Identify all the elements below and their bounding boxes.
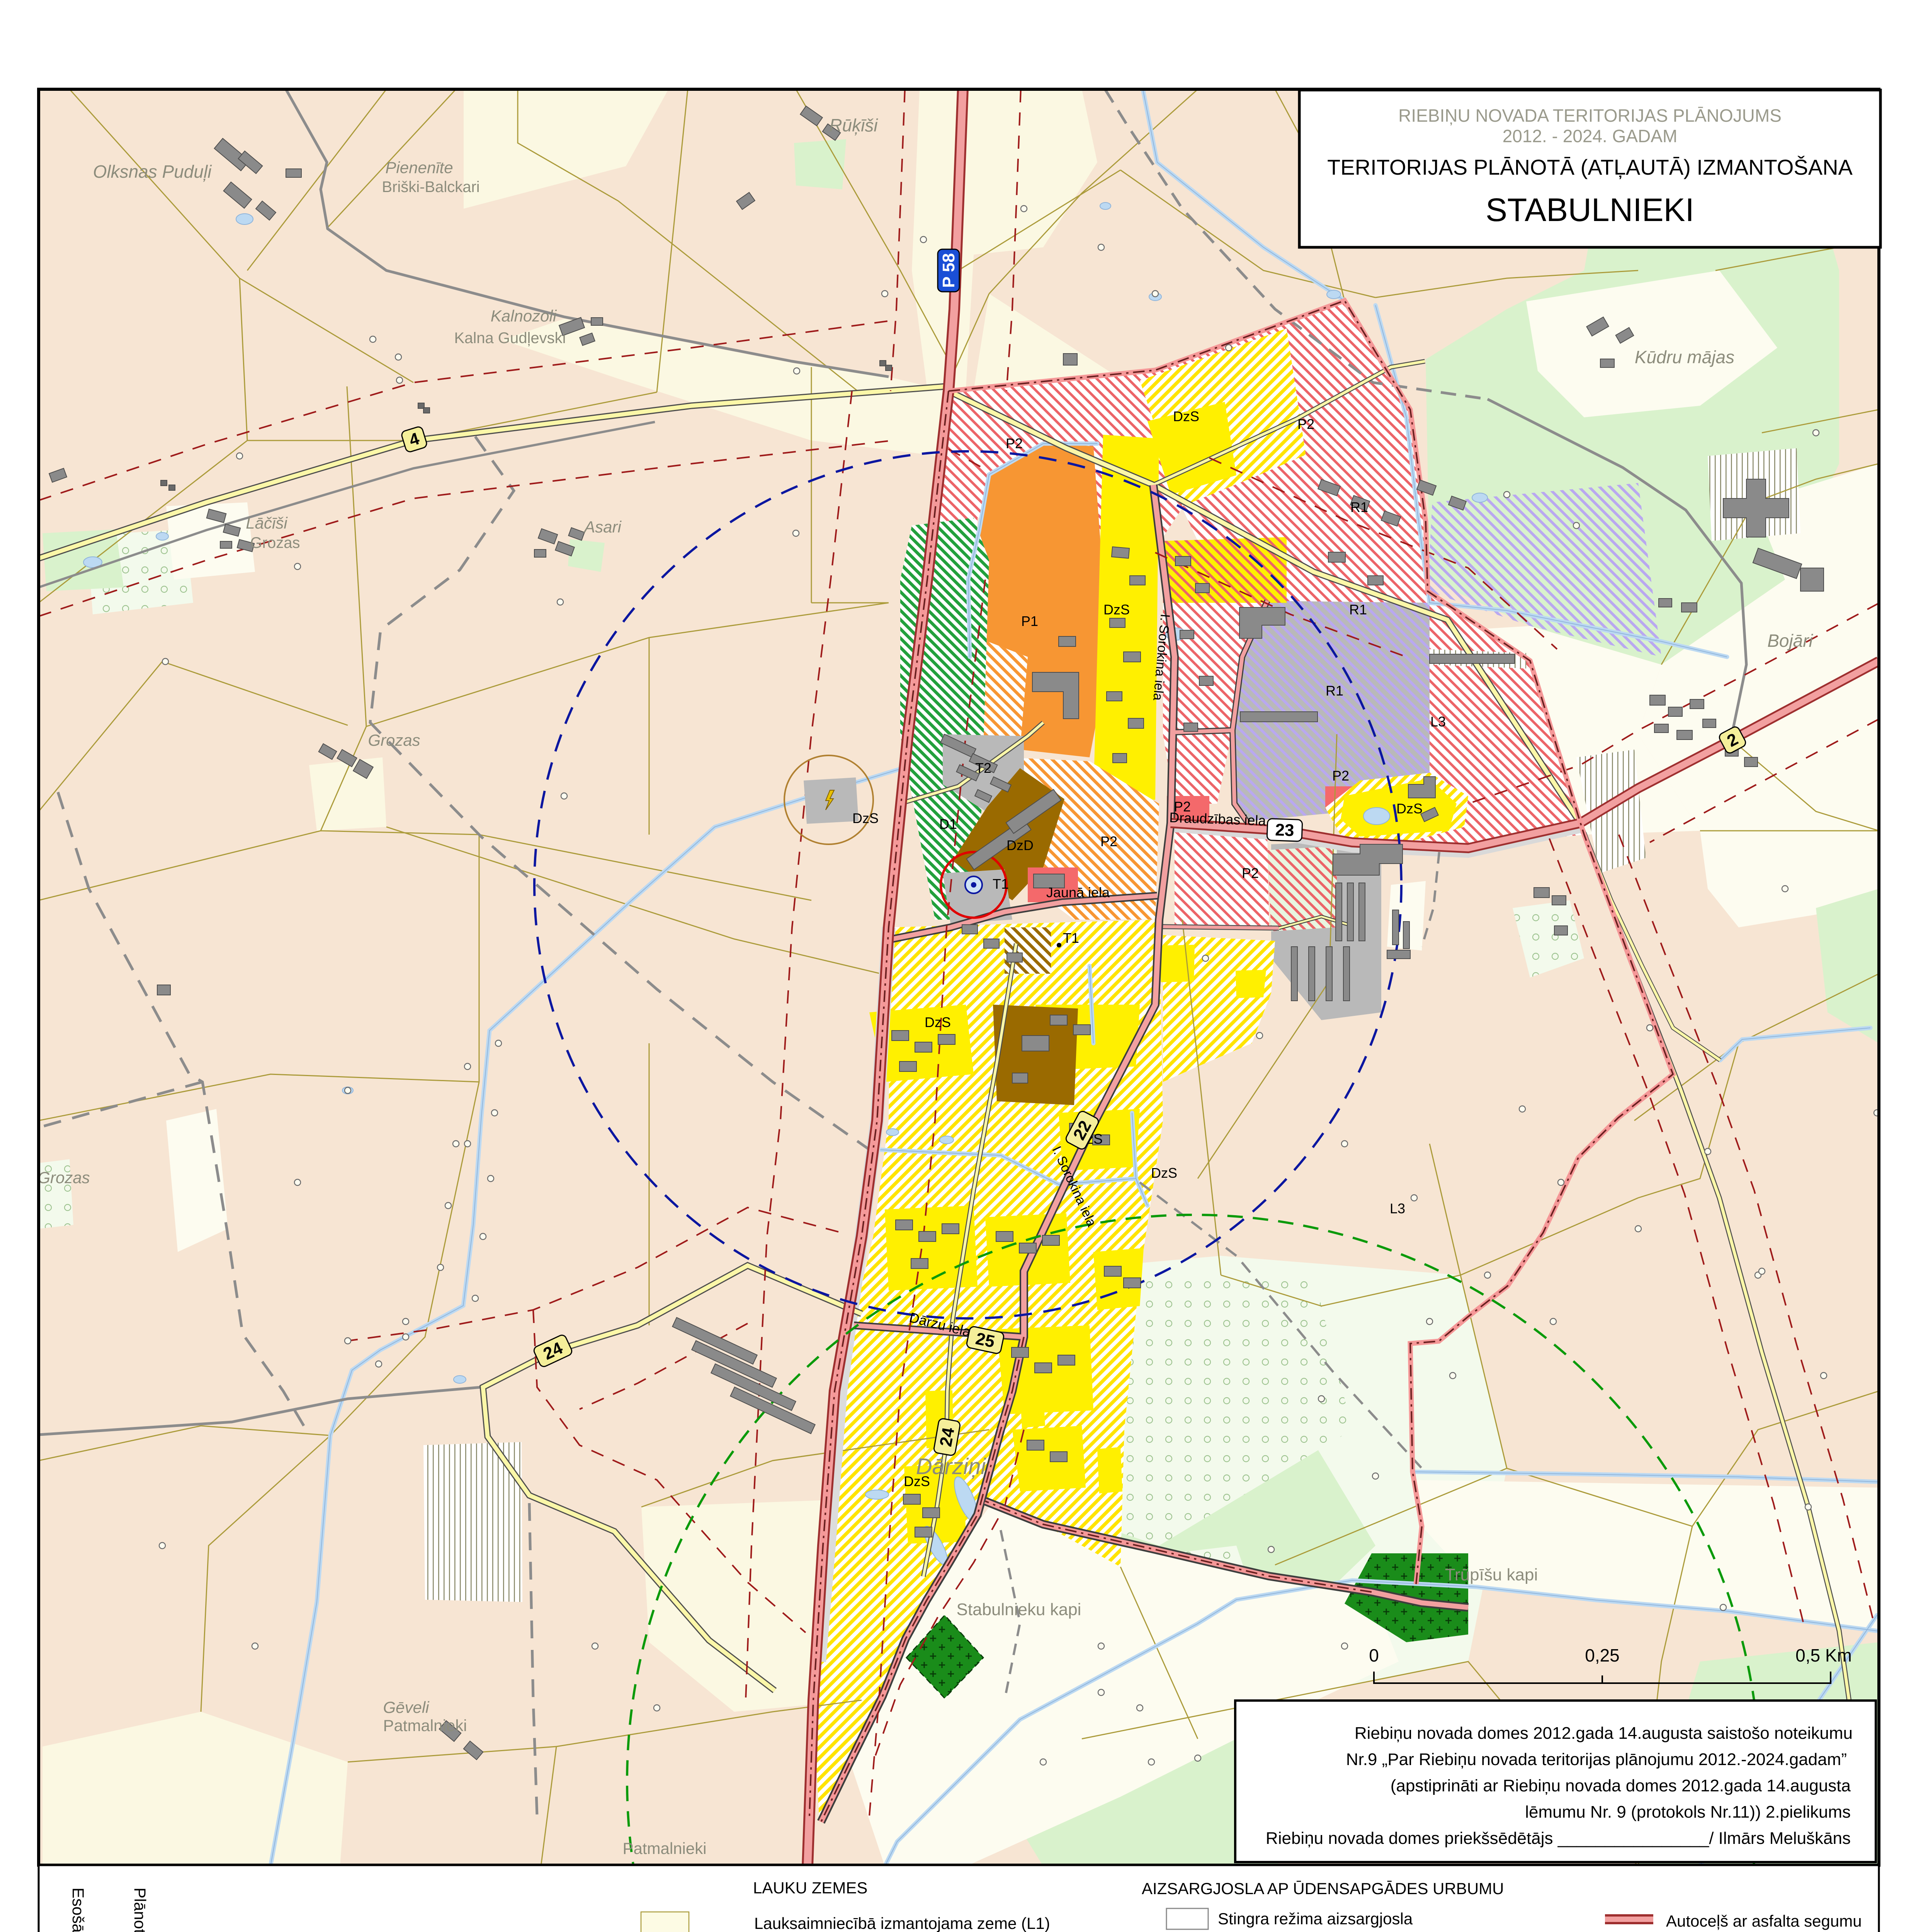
svg-text:Trūpīšu kapi: Trūpīšu kapi (1445, 1565, 1538, 1584)
svg-text:Briški-Balckari: Briški-Balckari (382, 179, 479, 196)
svg-text:Plānotā situācija: Plānotā situācija (131, 1888, 149, 1932)
svg-text:P2: P2 (1242, 865, 1259, 881)
svg-text:DzS: DzS (1151, 1165, 1177, 1181)
svg-text:Stabulnieku kapi: Stabulnieku kapi (957, 1600, 1081, 1619)
svg-text:Nr.9 „Par Riebiņu novada ter: Nr.9 „Par Riebiņu novada teritorijas plā… (1346, 1750, 1847, 1769)
svg-text:Olksnas Puduļi: Olksnas Puduļi (93, 162, 213, 182)
svg-text:RIEBIŅU NOVADA TERITORIJAS PLĀ: RIEBIŅU NOVADA TERITORIJAS PLĀNOJUMS (1398, 105, 1782, 126)
svg-text:DzS: DzS (1103, 602, 1130, 617)
svg-text:Kūdru mājas: Kūdru mājas (1635, 347, 1734, 367)
svg-text:P2: P2 (1006, 435, 1023, 451)
svg-text:T1: T1 (993, 876, 1009, 892)
svg-text:Asari: Asari (583, 518, 622, 536)
svg-text:Rūķīši: Rūķīši (829, 115, 878, 136)
svg-text:(apstiprināti ar Riebiņu novad: (apstiprināti ar Riebiņu novada domes 20… (1391, 1776, 1851, 1795)
svg-text:P1: P1 (1021, 613, 1038, 629)
svg-text:L3: L3 (1430, 714, 1446, 730)
svg-text:D1: D1 (939, 816, 957, 832)
svg-text:DzS: DzS (1173, 408, 1199, 424)
svg-text:P2: P2 (1332, 768, 1349, 784)
svg-text:AIZSARGJOSLA AP ŪDENSAPGĀDES U: AIZSARGJOSLA AP ŪDENSAPGĀDES URBUMU (1142, 1879, 1504, 1898)
svg-text:R1: R1 (1349, 602, 1367, 617)
svg-text:0,5 Km: 0,5 Km (1795, 1645, 1852, 1665)
svg-text:P2: P2 (1297, 416, 1314, 432)
svg-text:Esošā situācija: Esošā situācija (69, 1888, 87, 1932)
svg-text:24: 24 (936, 1426, 958, 1448)
svg-text:Grozas: Grozas (368, 731, 420, 749)
svg-text:R1: R1 (1350, 499, 1368, 515)
svg-text:Riebiņu novada domes 2012.gada: Riebiņu novada domes 2012.gada 14.august… (1355, 1724, 1853, 1743)
svg-text:LAUKU ZEMES: LAUKU ZEMES (753, 1879, 867, 1897)
svg-text:lēmumu Nr. 9 (protokols Nr.11): lēmumu Nr. 9 (protokols Nr.11)) 2.pielik… (1525, 1803, 1851, 1821)
svg-text:P2: P2 (1174, 799, 1191, 815)
svg-text:Lāčīši: Lāčīši (246, 514, 288, 532)
svg-text:Grozas: Grozas (37, 1168, 90, 1187)
svg-text:2012. - 2024. GADAM: 2012. - 2024. GADAM (1503, 126, 1678, 146)
svg-text:25: 25 (974, 1329, 996, 1351)
svg-text:Gēveli: Gēveli (383, 1698, 430, 1716)
svg-text:DzS: DzS (925, 1014, 951, 1030)
svg-text:Grozas: Grozas (250, 534, 300, 551)
svg-text:T1: T1 (1063, 930, 1079, 946)
svg-text:Riebiņu novada domes priekšsēd: Riebiņu novada domes priekšsēdētājs ____… (1266, 1829, 1851, 1848)
svg-text:Kalnozoli: Kalnozoli (491, 307, 557, 325)
svg-text:STABULNIEKI: STABULNIEKI (1486, 192, 1694, 228)
svg-text:DzS: DzS (852, 810, 879, 826)
svg-text:0,25: 0,25 (1585, 1645, 1620, 1665)
svg-text:Stingra režima aizsargjosla: Stingra režima aizsargjosla (1218, 1910, 1413, 1928)
svg-text:Autoceļš ar asfalta segumu: Autoceļš ar asfalta segumu (1666, 1912, 1862, 1930)
svg-text:TERITORIJAS PLĀNOTĀ (ATĻAUTĀ): TERITORIJAS PLĀNOTĀ (ATĻAUTĀ) IZMANTOŠAN… (1327, 155, 1853, 179)
svg-text:Kalna Gudļevski: Kalna Gudļevski (454, 330, 566, 347)
svg-text:R1: R1 (1326, 683, 1343, 699)
svg-text:23: 23 (1275, 820, 1295, 840)
svg-text:DzS: DzS (904, 1473, 930, 1489)
svg-text:L3: L3 (1390, 1201, 1405, 1216)
svg-text:Pienenīte: Pienenīte (385, 158, 453, 177)
svg-text:Bojāri: Bojāri (1767, 631, 1813, 651)
svg-text:P2: P2 (1100, 833, 1117, 849)
svg-text:Lauksaimniecībā izmantojama ze: Lauksaimniecībā izmantojama zeme (L1) (754, 1914, 1050, 1932)
svg-text:DzD: DzD (1006, 837, 1034, 853)
svg-text:0: 0 (1369, 1645, 1379, 1665)
svg-text:Patmalnieki: Patmalnieki (622, 1839, 706, 1857)
svg-text:Jaunā iela: Jaunā iela (1046, 884, 1110, 900)
svg-text:T2: T2 (975, 760, 991, 776)
svg-text:Patmalnieki: Patmalnieki (383, 1716, 467, 1735)
svg-text:P 58: P 58 (939, 253, 958, 288)
svg-text:DzS: DzS (1396, 801, 1423, 816)
